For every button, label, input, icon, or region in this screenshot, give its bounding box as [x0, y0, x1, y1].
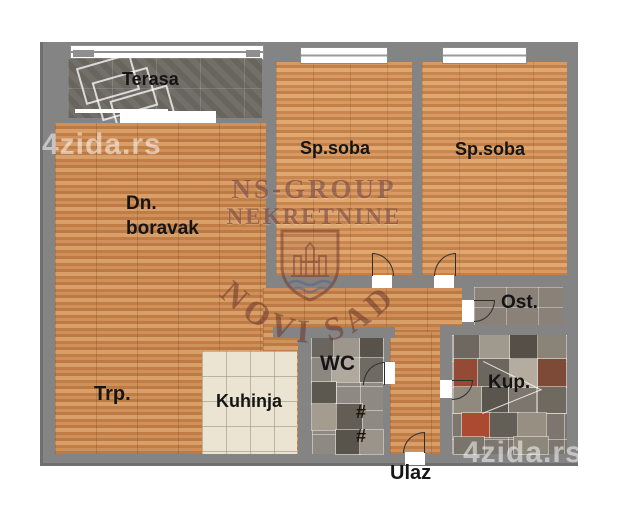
window: [300, 47, 388, 64]
room-label-wc: WC: [320, 353, 355, 375]
tile: [462, 413, 490, 437]
room-label-bedroom-right: Sp.soba: [455, 140, 525, 159]
tile: [538, 359, 566, 387]
tile: [538, 387, 566, 413]
tile: [312, 404, 336, 430]
tile: [454, 335, 480, 359]
room-label-bathroom: Kup.: [488, 373, 530, 393]
tile: [312, 382, 336, 404]
tile: [538, 335, 566, 359]
wall-storage-bottom: [440, 325, 567, 335]
floor-plan-image: Terasa Sp.soba Sp.soba Dn. boravak Trp. …: [0, 0, 625, 518]
room-label-dining: Trp.: [94, 384, 131, 405]
wall-wc-top: [273, 327, 395, 338]
tile: [518, 413, 546, 437]
watermark-agency-name: NS-GROUP: [222, 174, 406, 205]
room-label-bedroom-mid: Sp.soba: [300, 139, 370, 158]
watermark-site-bottom-right: 4zida.rs: [463, 436, 583, 470]
room-label-storage: Ost.: [501, 293, 538, 313]
door-opening-bedroom-right: [434, 275, 454, 288]
room-label-kitchen: Kuhinja: [216, 392, 282, 411]
terrace-railing-post: [246, 50, 260, 57]
novi-sad-shield-icon: [277, 226, 343, 304]
door-opening-bathroom: [440, 380, 452, 398]
room-label-terrace: Terasa: [122, 70, 179, 89]
stair-hash-mark: #: [356, 427, 366, 446]
tile: [480, 335, 510, 359]
tile: [490, 413, 518, 437]
window: [442, 47, 527, 64]
watermark-site-left: 4zida.rs: [42, 128, 162, 162]
tile: [360, 338, 383, 358]
room-label-living-line2: boravak: [126, 219, 199, 239]
door-opening-bedroom-mid: [372, 275, 392, 288]
stair-hash-mark: #: [356, 403, 366, 422]
room-label-living-line1: Dn.: [126, 194, 157, 214]
door-opening-storage: [462, 300, 474, 322]
tile: [510, 335, 538, 359]
room-label-entrance: Ulaz: [390, 463, 431, 484]
terrace-railing-post: [73, 50, 94, 57]
room-bedroom-right: [422, 62, 567, 275]
